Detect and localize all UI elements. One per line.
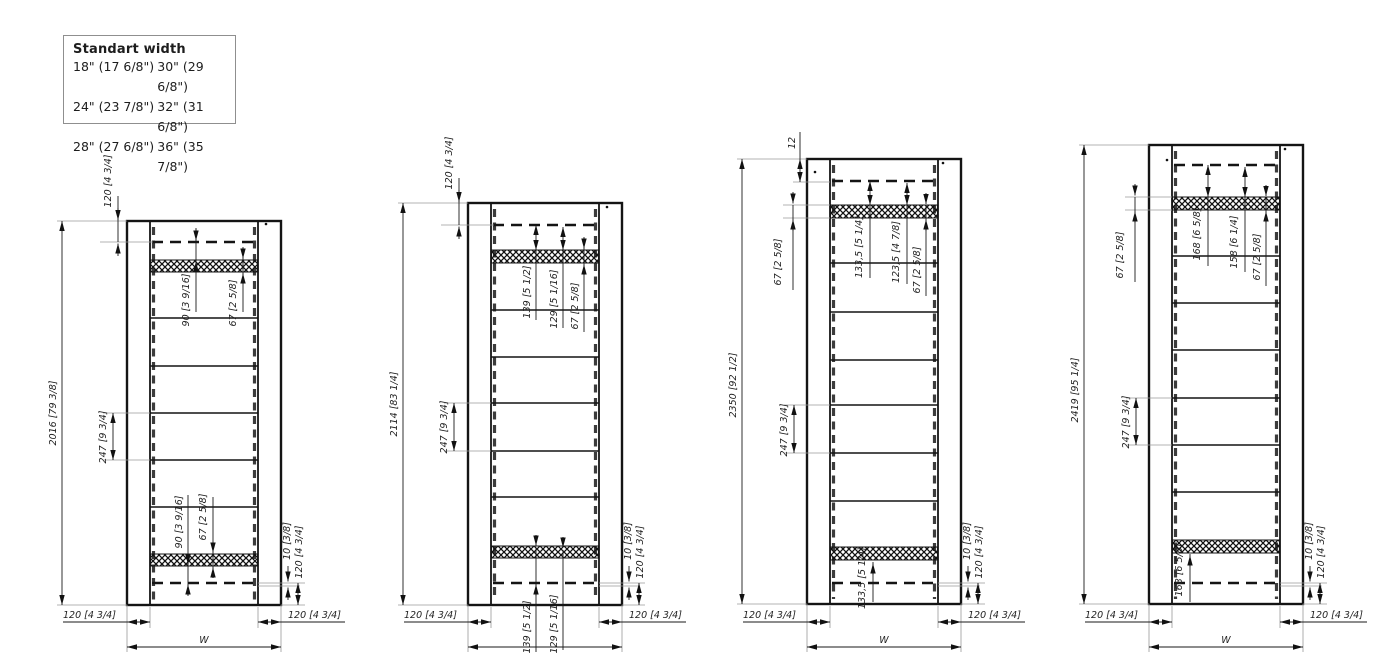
legend-size: 28" (27 6/8") [73, 137, 157, 177]
door-drawing-4: 2419 [95 1/4] 67 [2 5/8] 168 [6 5/8] 158… [1070, 145, 1367, 652]
dim-bottom-gap: 10 [3/8] [623, 522, 634, 560]
dim-top-rail-2: 129 [5 1/16] [549, 269, 560, 328]
legend-title: Standart width [73, 42, 235, 57]
door-frame [1149, 145, 1303, 604]
dim-top-rail-1: 133,5 [5 1/4] [854, 216, 865, 278]
door-rails [1172, 197, 1280, 553]
dim-bottom-offset: 120 [4 3/4] [294, 525, 305, 578]
dim-overall-height: 2419 [95 1/4] [1070, 357, 1081, 422]
door-rails [491, 250, 599, 558]
door-drawing-3: 2350 [92 1/2] 12 67 [2 5/8] 133,5 [5 1/4… [728, 132, 1025, 652]
dim-bottom-gap: 10 [3/8] [282, 522, 293, 560]
dim-overall-height: 2350 [92 1/2] [728, 352, 739, 417]
door-drawing-2: 2114 [83 1/4] 120 [4 3/4] 139 [5 1/2] 12… [389, 136, 686, 653]
dim-top-rail-1: 139 [5 1/2] [522, 265, 533, 318]
dimension-labels: 2016 [79 3/8] 120 [4 3/4] 90 [3 9/16] 67… [48, 154, 341, 646]
dim-bottom-rail: 133,5 [5 1/4] [857, 547, 868, 609]
dim-bottom-rail: 90 [3 9/16] [174, 495, 185, 548]
dim-top-rail-2: 123,5 [4 7/8] [891, 221, 902, 283]
dim-right-stile: 120 [4 3/4] [629, 610, 682, 621]
legend-size: 18" (17 6/8") [73, 57, 157, 97]
dim-top-rail-1: 168 [6 5/8] [1192, 207, 1203, 260]
dim-left-stile: 120 [4 3/4] [63, 610, 116, 621]
dim-width: W [879, 635, 889, 646]
dim-left-band: 67 [2 5/8] [1115, 231, 1126, 278]
dim-width: W [199, 635, 209, 646]
door-drawing-1: 2016 [79 3/8] 120 [4 3/4] 90 [3 9/16] 67… [48, 154, 345, 652]
dim-rail-spacing: 247 [9 3/4] [439, 400, 450, 453]
legend-size: 24" (23 7/8") [73, 97, 157, 137]
dim-rail-spacing: 247 [9 3/4] [779, 403, 790, 456]
dim-overall-height: 2114 [83 1/4] [389, 371, 400, 436]
door-frame [807, 159, 961, 604]
dim-top-offset: 120 [4 3/4] [444, 136, 455, 189]
dim-top-rail-2: 158 [6 1/4] [1229, 215, 1240, 268]
dim-bottom-rail: 168 [6 5/8] [1174, 543, 1185, 596]
legend-size: 30" (29 6/8") [157, 57, 235, 97]
dim-left-stile: 120 [4 3/4] [1085, 610, 1138, 621]
dim-right-stile: 120 [4 3/4] [1310, 610, 1363, 621]
dim-left-stile: 120 [4 3/4] [404, 610, 457, 621]
dim-bottom-offset: 120 [4 3/4] [635, 525, 646, 578]
dim-right-stile: 120 [4 3/4] [968, 610, 1021, 621]
dim-rail-spacing: 247 [9 3/4] [1121, 395, 1132, 448]
dim-width: W [1221, 635, 1231, 646]
legend-size: 32" (31 6/8") [157, 97, 235, 137]
dim-top-band: 67 [2 5/8] [1252, 233, 1263, 280]
dim-top-rail: 90 [3 9/16] [181, 273, 192, 326]
standard-width-legend: Standart width 18" (17 6/8") 30" (29 6/8… [63, 35, 236, 124]
dim-bottom-gap: 10 [3/8] [962, 522, 973, 560]
dim-right-stile: 120 [4 3/4] [288, 610, 341, 621]
dim-bottom-rail-1: 139 [5 1/2] [522, 600, 533, 653]
technical-drawing-sheet: 2016 [79 3/8] 120 [4 3/4] 90 [3 9/16] 67… [0, 0, 1400, 670]
dim-top-band: 67 [2 5/8] [912, 246, 923, 293]
legend-row: 18" (17 6/8") 30" (29 6/8") [73, 57, 235, 97]
dim-bottom-rail-2: 129 [5 1/16] [549, 594, 560, 653]
legend-row: 28" (27 6/8") 36" (35 7/8") [73, 137, 235, 177]
dim-rail-spacing: 247 [9 3/4] [98, 410, 109, 463]
dim-bottom-offset: 120 [4 3/4] [1316, 525, 1327, 578]
dim-bottom-offset: 120 [4 3/4] [974, 525, 985, 578]
dimension-labels: 2419 [95 1/4] 67 [2 5/8] 168 [6 5/8] 158… [1070, 207, 1363, 646]
dim-overall-height: 2016 [79 3/8] [48, 380, 59, 445]
dim-top-offset: 12 [787, 137, 798, 149]
dim-left-band: 67 [2 5/8] [773, 238, 784, 285]
dim-left-stile: 120 [4 3/4] [743, 610, 796, 621]
dim-top-band: 67 [2 5/8] [570, 282, 581, 329]
dim-top-band: 67 [2 5/8] [228, 279, 239, 326]
dim-bottom-band: 67 [2 5/8] [198, 493, 209, 540]
dim-bottom-gap: 10 [3/8] [1304, 522, 1315, 560]
legend-size: 36" (35 7/8") [157, 137, 235, 177]
legend-row: 24" (23 7/8") 32" (31 6/8") [73, 97, 235, 137]
